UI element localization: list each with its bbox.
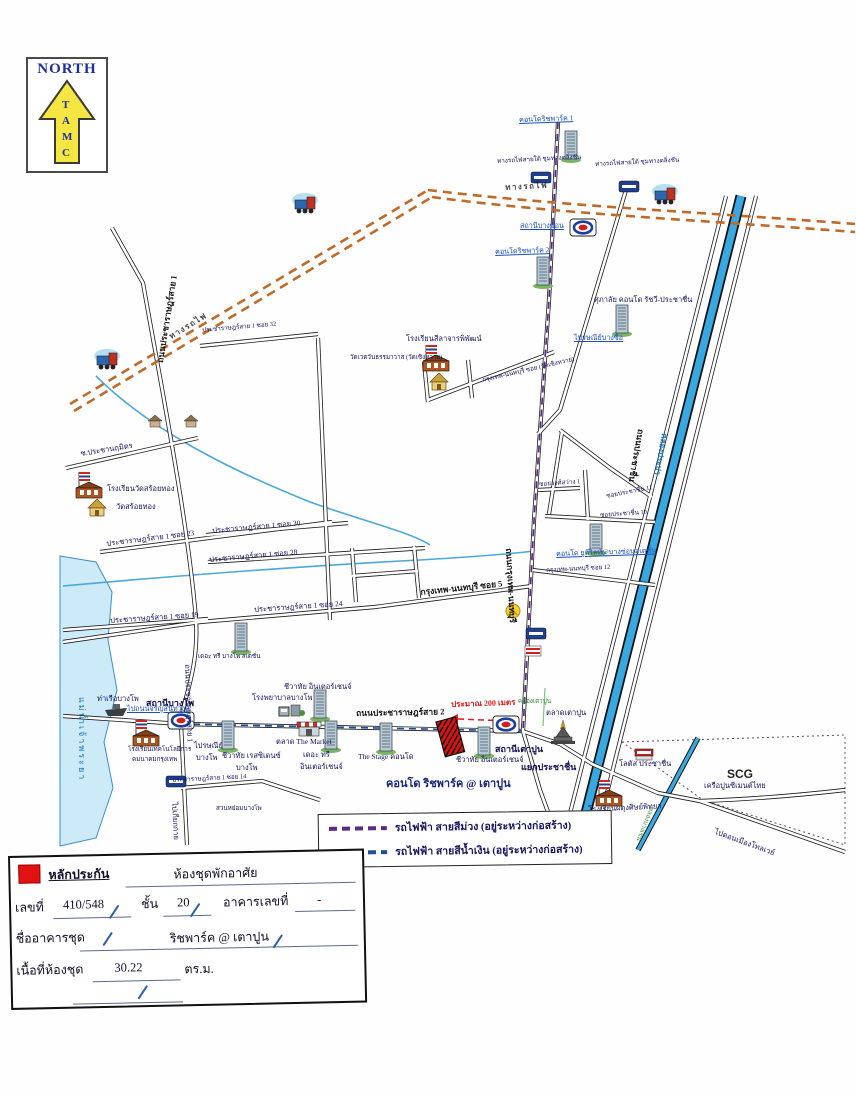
taopoon-pagoda-icon [551,720,575,744]
train-icon-2 [292,193,318,213]
property-type-value: ห้องชุดพักอาศัย [173,863,257,885]
lotus-store-icon [635,749,653,760]
purple-dash-icon [329,826,387,830]
wat-soithong-icon [88,499,106,516]
sign-blue-icon-3 [526,628,546,639]
condo-udelight-icon [586,524,606,556]
collateral-form: หลักประกัน ห้องชุดพักอาศัย เลขที่ 410/54… [8,849,367,1010]
mrt-bangson-icon [570,219,596,236]
building-no-label: อาคารเลขที่ [223,891,289,912]
guarantee-label: หลักประกัน [48,864,109,885]
school-silacharn-icon [423,345,449,371]
north-arrow-letter-t: T [62,99,69,111]
sign-blue-icon-2 [619,181,639,192]
unit-no-value: 410/548 [63,897,104,913]
subject-property-icon [436,717,465,757]
train-icon-1 [94,349,120,369]
mrt-taopoon-icon [493,716,519,733]
north-compass: NORTH T A M C [26,57,108,173]
the-market-icon [297,722,321,736]
underline [163,914,211,917]
underline [53,915,131,919]
north-arrow-letter-m: M [62,131,72,143]
handwritten-check [102,932,113,947]
underline [295,909,355,912]
underline [93,978,181,982]
floor-value: 20 [177,895,190,910]
unit-area-value: 30.22 [114,960,142,976]
mrt-bangpho-icon [168,712,194,729]
collateral-red-marker-icon [18,864,40,883]
condo-chewathai1-icon [310,690,330,722]
sign-red-icon [525,646,541,656]
building-name-label: ชื่ออาคารชุด [16,927,86,948]
underline [73,1000,183,1004]
chao-phraya-river [60,556,117,846]
school-phadung-icon [596,780,622,806]
streams [63,376,545,726]
train-icon-3 [652,184,678,204]
condo-richpark1-icon [561,131,581,163]
poi-yellow-icon [506,604,520,618]
school-watsoithong-icon [76,472,102,498]
sign-blue-icon-1 [531,172,551,183]
unit-area-label: เนื้อที่ห้องชุด [16,959,83,980]
north-arrow-letter-a: A [62,115,70,127]
pavilion-icon-1 [148,415,162,427]
wat-soenghwai-icon [430,373,448,390]
scanned-map-page: คอนโดริชพาร์ค 1ทางรถไฟสายใต้ ชุมทางตลิ่ง… [0,0,856,1095]
unit-no-label: เลขที่ [15,897,44,918]
north-label: NORTH [28,61,106,78]
floor-label: ชั้น [141,894,158,914]
condo-tree-bangpho-icon [231,623,251,655]
condo-supalai-icon [612,305,632,337]
north-arrow-letter-c: C [62,147,70,159]
hospital-bangpho-icon [279,705,305,716]
unit-area-unit: ตร.ม. [184,959,214,980]
building-no-value: - [317,892,321,907]
legend-item-blue-label: รถไฟฟ้า สายสีน้ำเงิน (อยู่ระหว่างก่อสร้า… [395,840,583,860]
pavilion-icon-2 [184,415,198,427]
railway-line [70,190,855,411]
legend-item-purple-label: รถไฟฟ้า สายสีม่วง (อยู่ระหว่างก่อสร้าง) [395,817,572,836]
sign-blue-icon-4 [166,776,186,787]
handwritten-check [138,985,149,1000]
